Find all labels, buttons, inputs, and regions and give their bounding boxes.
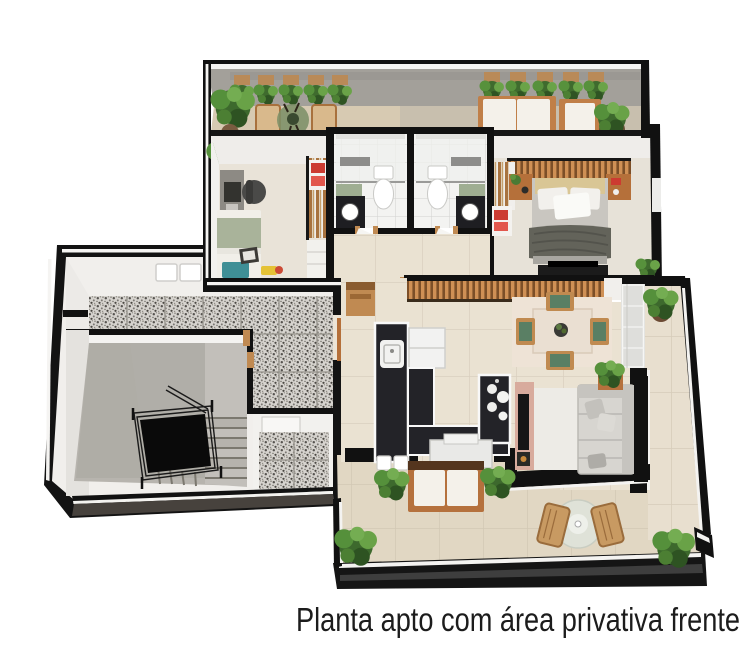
svg-text:Planta apto com área privativa: Planta apto com área privativa frente [296, 601, 740, 638]
